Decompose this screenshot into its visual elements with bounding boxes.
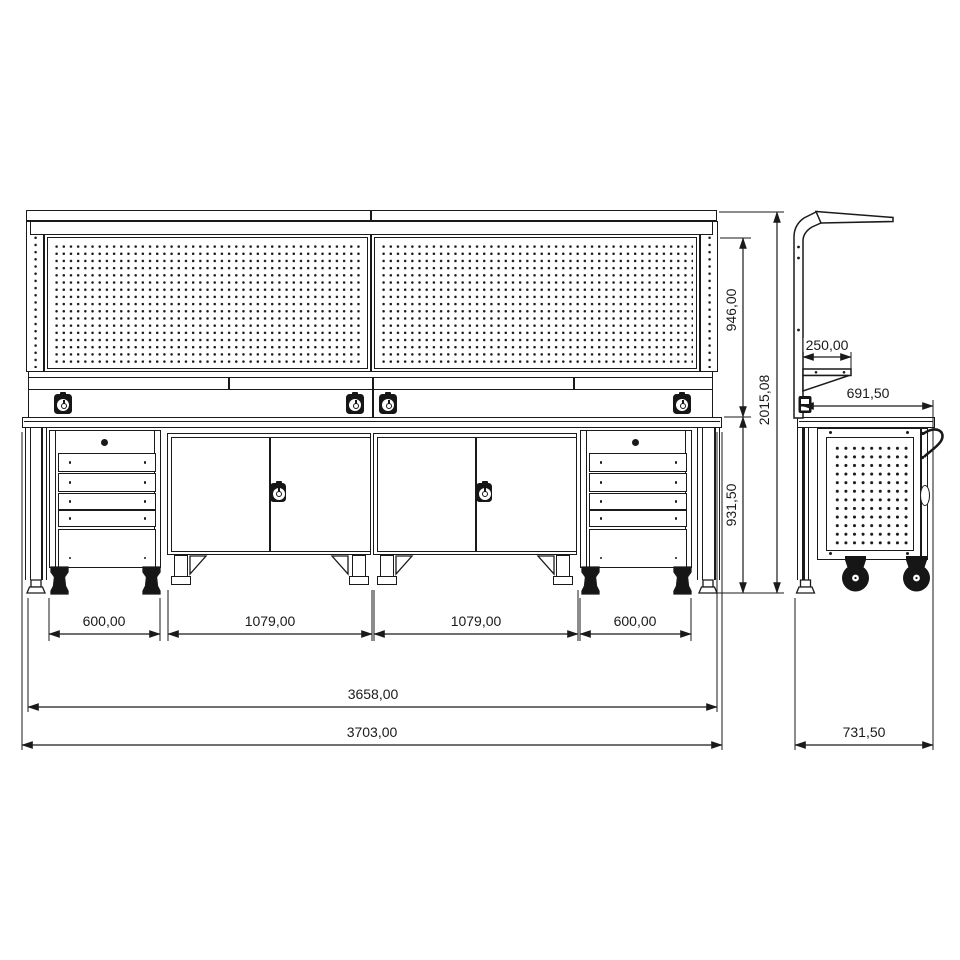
- pegboard-perforation-texture: [378, 241, 693, 365]
- caster-fork: [906, 560, 927, 572]
- side-power-box-slot: [801, 407, 809, 411]
- side-power-box: [799, 396, 812, 413]
- shelf-bolt: [815, 371, 818, 374]
- post-bolt: [797, 329, 800, 332]
- upstand-seam: [573, 378, 575, 389]
- pegboard-post-left: [26, 221, 44, 372]
- caster-hub: [913, 575, 920, 582]
- drawer-unit-rail: [55, 431, 56, 567]
- caster-fork: [845, 560, 866, 572]
- leveling-foot-right: [699, 580, 717, 593]
- upstand-seam: [372, 378, 374, 389]
- power-outlet-icon: [379, 394, 397, 414]
- dim-label-total-height: 2015,08: [757, 373, 771, 428]
- drawer-front: [589, 493, 687, 510]
- technical-drawing-canvas: 600,00 1079,00 1079,00 600,00 3658,00 37…: [0, 0, 960, 960]
- caster-wheel: [842, 565, 869, 592]
- drawer-front: [58, 510, 156, 527]
- power-symbol-icon: [353, 403, 360, 410]
- pegboard-perforation-texture: [51, 241, 364, 365]
- dim-label-bench-depth: 691,50: [845, 386, 892, 400]
- dim-label-total-width: 3703,00: [345, 725, 400, 739]
- caster-icon: [51, 567, 68, 594]
- caster-icon: [143, 567, 160, 594]
- upstand-seam: [228, 378, 230, 389]
- cabinet-door: [377, 437, 476, 552]
- side-upright-post: [794, 212, 822, 419]
- drawer-front: [589, 453, 687, 472]
- pegboard-panel-left: [44, 234, 371, 372]
- drawer-front: [58, 493, 156, 510]
- pegboard-perforation-texture: [704, 225, 714, 368]
- dim-label-module-right: 600,00: [612, 614, 659, 628]
- power-symbol-icon: [386, 403, 393, 410]
- dim-label-module-left: 600,00: [81, 614, 128, 628]
- cabinet-left: [167, 433, 371, 555]
- shelf-bolt: [843, 371, 846, 374]
- side-bench-worktop: [797, 417, 935, 428]
- dim-label-cabinet-right: 1079,00: [449, 614, 504, 628]
- pegboard-post-right: [700, 221, 718, 372]
- key-cylinder-icon: [482, 491, 489, 498]
- drawer-front-large: [589, 529, 687, 568]
- drawer-front: [58, 473, 156, 492]
- pegboard-perforation-texture: [30, 225, 40, 368]
- worktop-edge-line: [24, 421, 720, 422]
- caster-hub-pin: [915, 577, 917, 579]
- pegboard-panel-right: [371, 234, 700, 372]
- leveling-foot-left: [27, 580, 45, 593]
- side-shelf-plate: [803, 369, 851, 376]
- cabinet-foot-pad: [553, 576, 573, 585]
- drawer-unit-right: [580, 430, 692, 568]
- side-latch: [920, 485, 930, 506]
- cabinet-door: [171, 437, 270, 552]
- side-perforated-panel: [826, 437, 914, 551]
- power-outlet-icon: [346, 394, 364, 414]
- post-bolt: [797, 257, 800, 260]
- drawer-front: [58, 453, 156, 472]
- dim-label-shelf-depth: 250,00: [804, 338, 851, 352]
- bench-leg-right: [697, 428, 720, 580]
- bench-leg-left: [25, 428, 47, 580]
- power-symbol-icon: [680, 403, 687, 410]
- power-strip-seam: [372, 390, 374, 417]
- power-outlet-icon: [54, 394, 72, 414]
- cabinet-foot-pad: [349, 576, 369, 585]
- drawer-lock-icon: [632, 439, 639, 446]
- cabinet-foot-pad: [171, 576, 191, 585]
- caster-icon: [674, 567, 691, 594]
- dim-label-bench-height: 931,50: [724, 482, 738, 529]
- upper-back-rail: [30, 221, 713, 235]
- side-panel-perforation-texture: [831, 442, 909, 546]
- caster-hub-pin: [854, 577, 856, 579]
- cabinet-lock-icon: [270, 483, 286, 502]
- cabinet-gusset: [396, 556, 412, 574]
- side-shelf-gusset: [803, 376, 849, 392]
- dim-label-cabinet-left: 1079,00: [243, 614, 298, 628]
- power-strip: [28, 389, 713, 418]
- cabinet-right: [373, 433, 577, 555]
- key-cylinder-icon: [276, 491, 283, 498]
- dim-label-inner-width: 3658,00: [346, 687, 401, 701]
- side-bench-leg: [797, 428, 809, 580]
- caster-wheel: [903, 565, 930, 592]
- cabinet-gusset: [190, 556, 206, 574]
- side-power-box-slot: [801, 399, 809, 404]
- caster-hub: [852, 575, 859, 582]
- drawer-lock-icon: [101, 439, 108, 446]
- cabinet-foot-pad: [377, 576, 397, 585]
- caster-icon: [582, 567, 599, 594]
- cabinet-gusset: [332, 556, 348, 574]
- drawer-front: [589, 473, 687, 492]
- dim-label-total-depth: 731,50: [841, 725, 888, 739]
- bench-worktop: [22, 417, 722, 428]
- drawer-front-large: [58, 529, 156, 568]
- pegboard-bottom-rail: [28, 371, 713, 378]
- worktop-edge-line: [799, 421, 933, 422]
- power-symbol-icon: [61, 403, 68, 410]
- post-bolt: [797, 246, 800, 249]
- drawer-unit-rail: [586, 431, 587, 567]
- cabinet-lock-icon: [476, 483, 492, 502]
- power-outlet-icon: [673, 394, 691, 414]
- canopy-panel-right: [371, 210, 717, 221]
- canopy-panel-left: [26, 210, 371, 221]
- side-leveling-foot: [797, 580, 815, 593]
- drawer-front: [589, 510, 687, 527]
- side-top-canopy: [816, 212, 893, 224]
- dim-label-panel-height: 946,00: [724, 287, 738, 334]
- drawer-unit-left: [49, 430, 161, 568]
- cabinet-gusset: [538, 556, 554, 574]
